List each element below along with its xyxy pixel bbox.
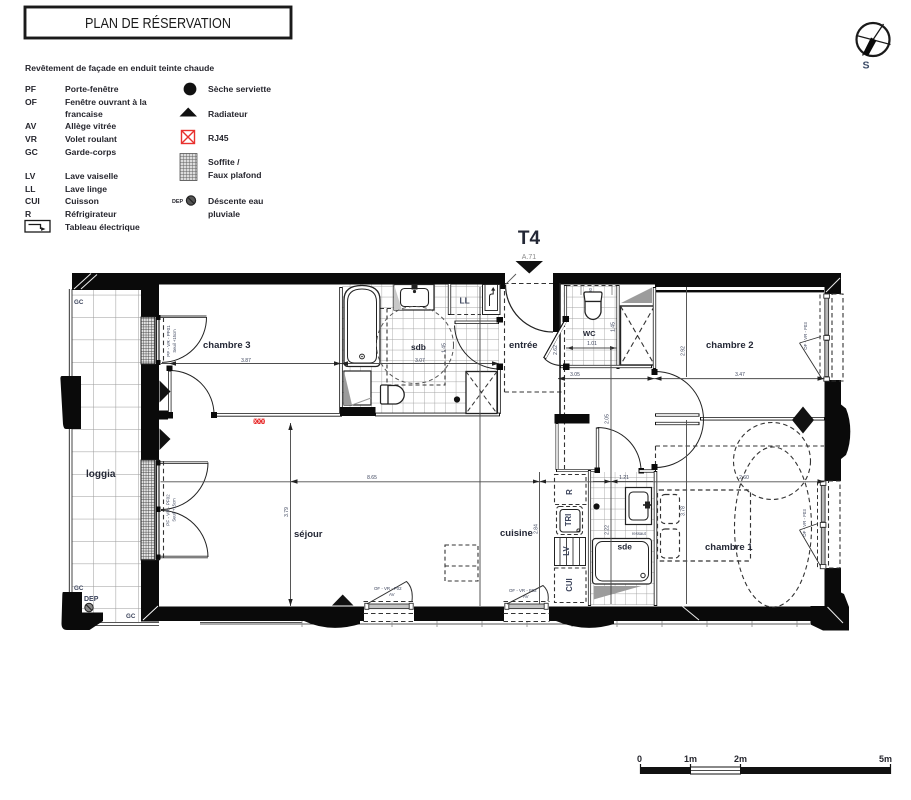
svg-text:Seuil +15cm: Seuil +15cm xyxy=(172,329,177,353)
svg-text:Seuil +15cm: Seuil +15cm xyxy=(172,498,177,522)
svg-text:GC: GC xyxy=(126,613,136,620)
svg-text:3.87: 3.87 xyxy=(241,358,251,364)
svg-text:francaise: francaise xyxy=(65,109,103,119)
svg-text:3.47: 3.47 xyxy=(735,372,745,378)
svg-text:ressaut: ressaut xyxy=(632,531,647,536)
svg-text:Radiateur: Radiateur xyxy=(208,109,248,119)
svg-text:cuisine: cuisine xyxy=(500,528,533,539)
svg-text:Déscente eau: Déscente eau xyxy=(208,196,263,206)
svg-text:OF - VR - F03: OF - VR - F03 xyxy=(803,322,808,350)
svg-text:chambre 3: chambre 3 xyxy=(203,340,251,351)
svg-text:AV: AV xyxy=(523,594,529,599)
svg-text:Lave linge: Lave linge xyxy=(65,184,107,194)
svg-text:2.62: 2.62 xyxy=(553,345,559,355)
svg-text:2m: 2m xyxy=(734,754,747,764)
svg-text:R: R xyxy=(565,489,574,495)
svg-text:3.05: 3.05 xyxy=(570,372,580,378)
svg-text:3.78: 3.78 xyxy=(681,506,687,516)
svg-text:sde: sde xyxy=(618,542,633,552)
svg-text:R: R xyxy=(25,209,32,219)
svg-text:CUI: CUI xyxy=(565,578,574,591)
svg-text:1.01: 1.01 xyxy=(587,341,597,347)
svg-text:AV: AV xyxy=(25,121,37,131)
svg-text:2.92: 2.92 xyxy=(681,346,687,356)
svg-text:PLAN DE RÉSERVATION: PLAN DE RÉSERVATION xyxy=(85,15,231,32)
svg-text:TRI: TRI xyxy=(564,514,573,527)
svg-text:2.22: 2.22 xyxy=(605,525,611,535)
svg-text:RJ45: RJ45 xyxy=(208,133,229,143)
svg-text:2.84: 2.84 xyxy=(534,524,540,534)
svg-text:Volet roulant: Volet roulant xyxy=(65,134,117,144)
svg-text:chambre 2: chambre 2 xyxy=(706,340,754,351)
svg-text:PF - VR - PF01: PF - VR - PF01 xyxy=(166,325,171,357)
svg-text:Cuisson: Cuisson xyxy=(65,196,99,206)
svg-text:Tableau électrique: Tableau électrique xyxy=(65,222,140,232)
svg-text:A.71: A.71 xyxy=(522,254,537,261)
svg-text:OF - VR - F03: OF - VR - F03 xyxy=(802,509,807,537)
svg-text:DEP: DEP xyxy=(172,199,183,205)
svg-text:DEP: DEP xyxy=(84,596,99,603)
svg-text:LL: LL xyxy=(460,296,470,306)
svg-text:LV: LV xyxy=(25,171,36,181)
svg-text:Sèche serviette: Sèche serviette xyxy=(208,84,271,94)
svg-text:séjour: séjour xyxy=(294,529,323,540)
svg-text:1.21: 1.21 xyxy=(619,475,629,481)
svg-text:Fenêtre ouvrant à la: Fenêtre ouvrant à la xyxy=(65,97,147,107)
svg-text:loggia: loggia xyxy=(86,469,116,480)
svg-text:LL: LL xyxy=(25,184,36,194)
svg-text:PF: PF xyxy=(25,84,36,94)
svg-text:PF - VR - PF02: PF - VR - PF02 xyxy=(166,494,171,526)
svg-text:entrée: entrée xyxy=(509,340,538,351)
svg-text:1m: 1m xyxy=(684,754,697,764)
svg-text:GC: GC xyxy=(25,147,38,157)
svg-text:CUI: CUI xyxy=(25,196,40,206)
svg-text:1.45: 1.45 xyxy=(442,343,448,353)
svg-text:Garde-corps: Garde-corps xyxy=(65,147,116,157)
svg-text:0: 0 xyxy=(637,754,642,764)
svg-text:OF: OF xyxy=(25,97,37,107)
svg-text:sdb: sdb xyxy=(411,342,426,352)
svg-text:S: S xyxy=(863,60,870,72)
svg-text:Réfrigirateur: Réfrigirateur xyxy=(65,209,117,219)
svg-text:chambre 1: chambre 1 xyxy=(705,542,753,553)
svg-text:AV: AV xyxy=(389,592,395,597)
svg-text:pluviale: pluviale xyxy=(208,209,240,219)
svg-text:GC: GC xyxy=(74,585,84,592)
svg-text:OF - VR - F02: OF - VR - F02 xyxy=(374,586,402,591)
svg-text:8.65: 8.65 xyxy=(367,475,377,481)
svg-text:WC: WC xyxy=(583,329,596,338)
svg-text:3.79: 3.79 xyxy=(284,507,290,517)
svg-text:Porte-fenêtre: Porte-fenêtre xyxy=(65,84,119,94)
svg-text:Faux plafond: Faux plafond xyxy=(208,170,261,180)
svg-text:Revêtement de façade en enduit: Revêtement de façade en enduit teinte ch… xyxy=(25,63,214,73)
svg-text:5m: 5m xyxy=(879,754,892,764)
svg-text:T4: T4 xyxy=(518,228,541,249)
svg-text:2.60: 2.60 xyxy=(739,475,749,481)
svg-text:LV: LV xyxy=(562,546,571,556)
svg-text:OF - VR - F02: OF - VR - F02 xyxy=(509,588,537,593)
svg-text:Allège vitrée: Allège vitrée xyxy=(65,121,116,131)
svg-text:Lave vaiselle: Lave vaiselle xyxy=(65,171,118,181)
svg-text:1.45: 1.45 xyxy=(611,322,617,332)
svg-text:VR: VR xyxy=(25,134,38,144)
svg-text:2.05: 2.05 xyxy=(605,414,611,424)
svg-text:GC: GC xyxy=(74,299,84,306)
svg-text:Soffite /: Soffite / xyxy=(208,157,240,167)
svg-text:3.07: 3.07 xyxy=(415,358,425,364)
